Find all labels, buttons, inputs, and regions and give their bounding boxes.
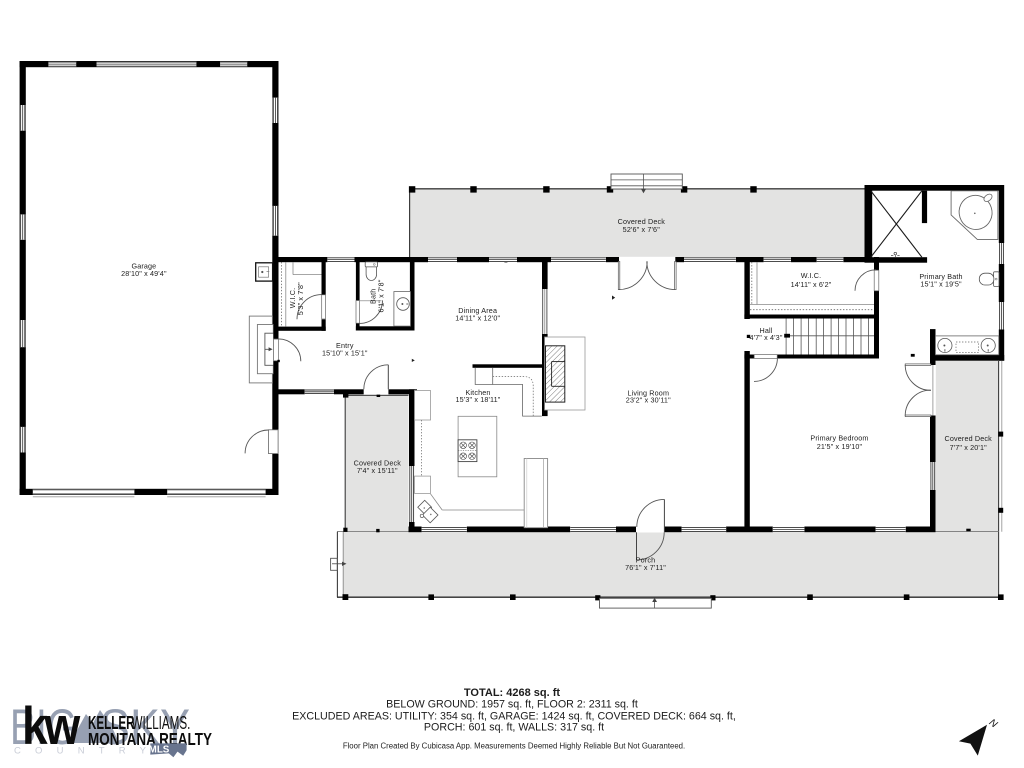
- svg-text:7'7" x 20'1": 7'7" x 20'1": [950, 443, 988, 452]
- svg-text:7'4" x 15'11": 7'4" x 15'11": [357, 466, 398, 475]
- svg-text:21'5" x 19'10": 21'5" x 19'10": [817, 442, 863, 451]
- svg-text:TOTAL: 4268 sq. ft: TOTAL: 4268 sq. ft: [464, 687, 561, 699]
- svg-text:15'1" x 19'5": 15'1" x 19'5": [920, 279, 962, 288]
- svg-text:14'11" x 6'2": 14'11" x 6'2": [791, 280, 832, 289]
- svg-text:76'1" x 7'11": 76'1" x 7'11": [625, 563, 666, 572]
- svg-text:EXCLUDED AREAS: UTILITY: 354 s: EXCLUDED AREAS: UTILITY: 354 sq. ft, GAR…: [292, 710, 736, 722]
- svg-text:Covered Deck: Covered Deck: [945, 434, 993, 443]
- svg-text:BELOW GROUND: 1957 sq. ft, FLO: BELOW GROUND: 1957 sq. ft, FLOOR 2: 2311…: [386, 698, 638, 710]
- svg-text:Floor Plan Created By Cubicasa: Floor Plan Created By Cubicasa App. Meas…: [343, 742, 685, 751]
- svg-text:MLS: MLS: [149, 745, 170, 756]
- svg-text:23'2" x 30'11": 23'2" x 30'11": [626, 396, 671, 405]
- svg-text:6'1" x 7'8": 6'1" x 7'8": [376, 279, 385, 312]
- svg-text:15'3" x 18'11": 15'3" x 18'11": [456, 395, 501, 404]
- svg-text:15'10" x 15'1": 15'10" x 15'1": [322, 348, 368, 357]
- svg-text:kw: kw: [22, 696, 81, 756]
- svg-text:52'6" x 7'6": 52'6" x 7'6": [623, 225, 661, 234]
- svg-text:5'3" x 7'8": 5'3" x 7'8": [296, 282, 305, 315]
- svg-text:28'10" x 49'4": 28'10" x 49'4": [121, 269, 167, 278]
- svg-text:PORCH: 601 sq. ft, WALLS: 317: PORCH: 601 sq. ft, WALLS: 317 sq. ft: [424, 722, 604, 734]
- svg-text:14'11" x 12'0": 14'11" x 12'0": [455, 314, 500, 323]
- svg-text:4'7" x 4'3": 4'7" x 4'3": [749, 333, 782, 342]
